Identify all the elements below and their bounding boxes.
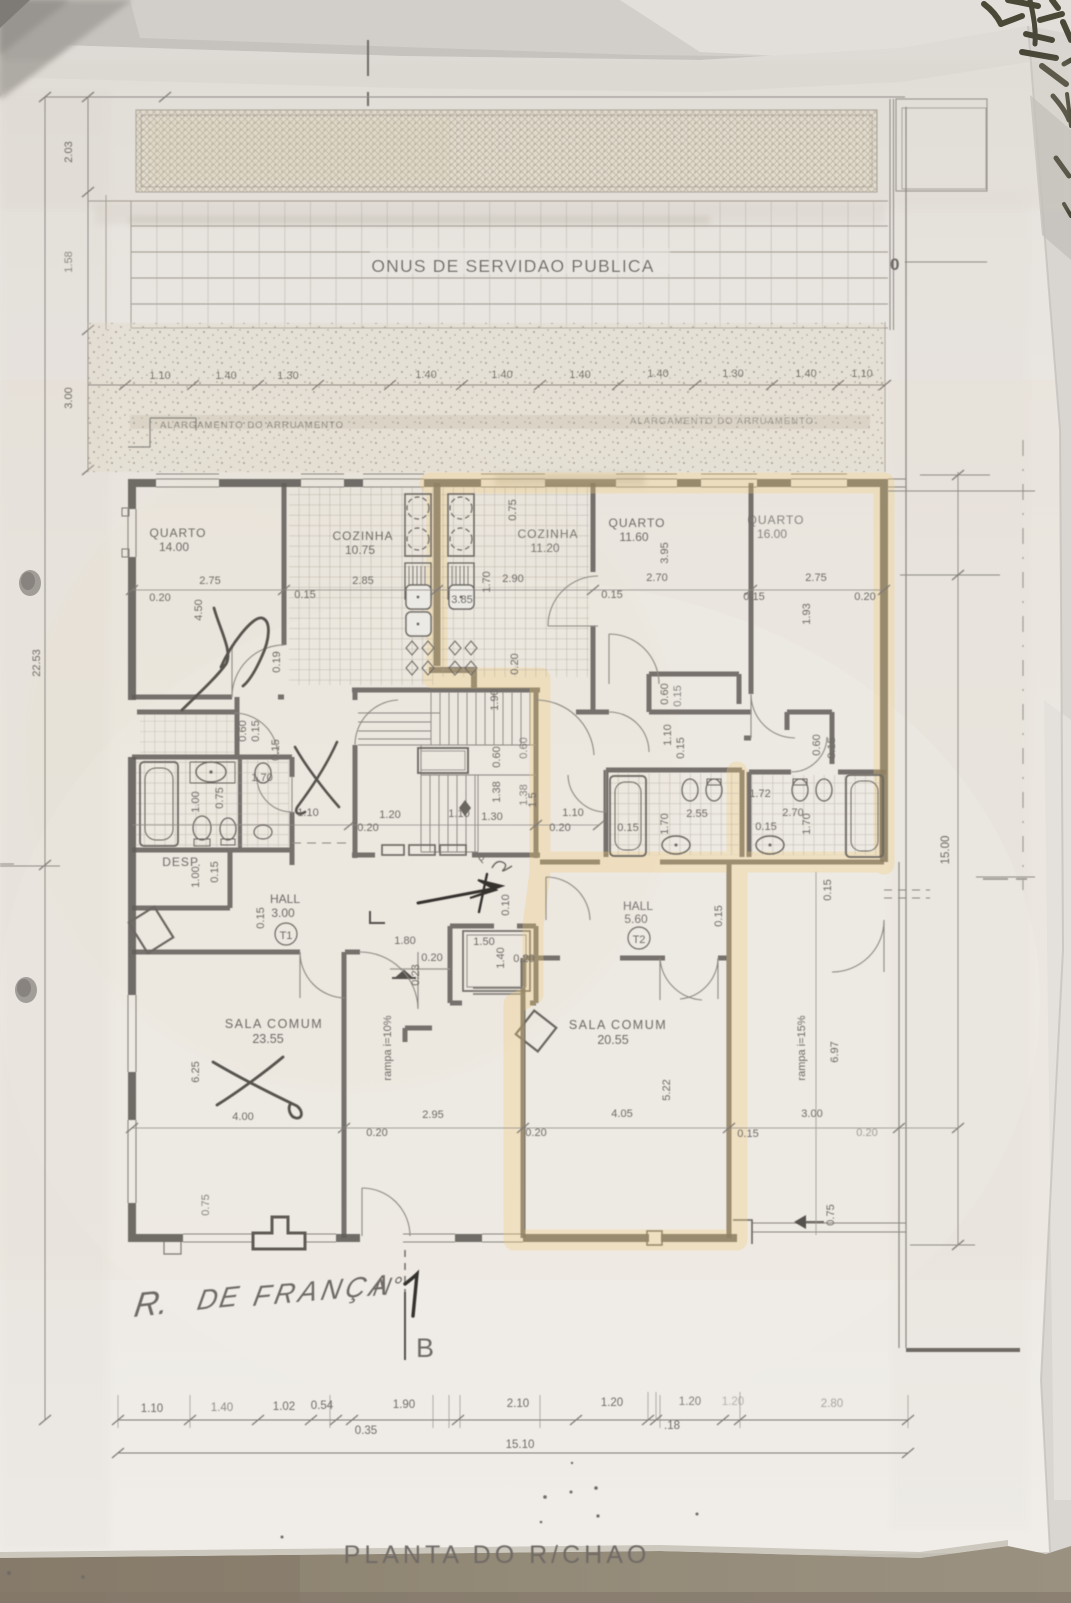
svg-text:0.20: 0.20 <box>856 1127 877 1139</box>
svg-text:0.15: 0.15 <box>675 737 687 758</box>
svg-text:HALL: HALL <box>623 899 653 913</box>
svg-text:6.25: 6.25 <box>190 1061 202 1082</box>
svg-text:0.15: 0.15 <box>617 822 638 834</box>
svg-text:0: 0 <box>890 255 899 274</box>
svg-text:0.54: 0.54 <box>311 1400 334 1412</box>
svg-text:ALARGAMENTO DO ARRUAMENTO: ALARGAMENTO DO ARRUAMENTO <box>160 420 344 431</box>
svg-text:N°: N° <box>371 1272 405 1302</box>
svg-text:0.15: 0.15 <box>209 861 221 882</box>
svg-text:0.15: 0.15 <box>713 905 725 926</box>
svg-text:0.60: 0.60 <box>659 683 671 704</box>
svg-text:0.60: 0.60 <box>491 746 503 767</box>
svg-text:T2: T2 <box>633 934 646 946</box>
svg-text:22.53: 22.53 <box>31 649 43 677</box>
svg-text:1.93: 1.93 <box>801 603 813 624</box>
svg-text:3.85: 3.85 <box>451 594 472 606</box>
svg-text:2.80: 2.80 <box>821 1398 843 1410</box>
svg-text:T1: T1 <box>280 930 293 942</box>
svg-text:COZINHA: COZINHA <box>333 529 394 543</box>
svg-text:QUARTO: QUARTO <box>748 513 805 527</box>
svg-text:HALL: HALL <box>270 892 300 906</box>
svg-text:1.70: 1.70 <box>801 813 813 834</box>
svg-text:0.15: 0.15 <box>250 720 262 741</box>
svg-text:2.95: 2.95 <box>422 1109 443 1121</box>
svg-text:1.20: 1.20 <box>679 1396 701 1408</box>
svg-text:0.75: 0.75 <box>825 1204 837 1225</box>
svg-text:2.70: 2.70 <box>646 572 667 584</box>
svg-text:20.55: 20.55 <box>597 1033 628 1047</box>
svg-text:4.50: 4.50 <box>193 599 205 620</box>
svg-text:1.20: 1.20 <box>379 809 400 821</box>
svg-text:0.20: 0.20 <box>149 592 170 604</box>
svg-text:3.95: 3.95 <box>659 542 671 563</box>
svg-text:0.20: 0.20 <box>525 1127 546 1139</box>
svg-text:0.35: 0.35 <box>355 1425 377 1437</box>
svg-text:2.85: 2.85 <box>352 575 373 587</box>
svg-text:0.20: 0.20 <box>854 591 875 603</box>
svg-text:rampa i=10%: rampa i=10% <box>382 1015 394 1080</box>
svg-text:1.72: 1.72 <box>749 788 770 800</box>
svg-text:0.15: 0.15 <box>737 1128 758 1140</box>
svg-text:1.58: 1.58 <box>63 251 75 272</box>
svg-text:0.15: 0.15 <box>822 879 834 900</box>
svg-text:0.20: 0.20 <box>421 952 442 964</box>
svg-text:3.00: 3.00 <box>271 906 295 920</box>
svg-text:0.23: 0.23 <box>410 964 422 985</box>
svg-text:16.00: 16.00 <box>757 527 787 541</box>
svg-text:0.15: 0.15 <box>755 821 776 833</box>
svg-text:1.70: 1.70 <box>251 772 272 784</box>
svg-text:23.55: 23.55 <box>252 1032 283 1046</box>
svg-text:1.20: 1.20 <box>722 1396 744 1408</box>
svg-text:0.20: 0.20 <box>509 653 521 674</box>
svg-text:15.00: 15.00 <box>940 836 952 865</box>
svg-text:1.40: 1.40 <box>415 369 436 381</box>
svg-text:0.20: 0.20 <box>357 822 378 834</box>
svg-text:0.20: 0.20 <box>549 822 570 834</box>
svg-text:2.75: 2.75 <box>199 575 220 587</box>
svg-text:ONUS DE SERVIDAO PUBLICA: ONUS DE SERVIDAO PUBLICA <box>371 256 654 276</box>
svg-text:1.90: 1.90 <box>489 689 501 710</box>
svg-text:0.60: 0.60 <box>237 720 249 741</box>
svg-text:1.40: 1.40 <box>569 369 590 381</box>
svg-text:QUARTO: QUARTO <box>609 516 666 530</box>
svg-text:1.10: 1.10 <box>149 370 170 382</box>
svg-text:1.00: 1.00 <box>190 866 202 887</box>
svg-text:QUARTO: QUARTO <box>150 526 207 540</box>
svg-text:0.15: 0.15 <box>255 907 267 928</box>
svg-text:1.40: 1.40 <box>215 370 236 382</box>
svg-text:5.60: 5.60 <box>624 912 648 926</box>
svg-text:11.60: 11.60 <box>619 530 648 544</box>
svg-text:1.80: 1.80 <box>394 935 415 947</box>
svg-text:1.90: 1.90 <box>393 1399 415 1411</box>
svg-text:SALA COMUM: SALA COMUM <box>225 1017 323 1031</box>
svg-text:2.90: 2.90 <box>502 573 523 585</box>
svg-text:10.75: 10.75 <box>345 543 375 557</box>
svg-text:1.00: 1.00 <box>190 791 202 812</box>
svg-text:1.40: 1.40 <box>647 368 668 380</box>
svg-text:COZINHA: COZINHA <box>518 527 579 541</box>
svg-text:1.50: 1.50 <box>473 936 494 948</box>
svg-text:0.20: 0.20 <box>366 1127 387 1139</box>
svg-text:1.10: 1.10 <box>562 807 583 819</box>
svg-text:2.55: 2.55 <box>686 808 707 820</box>
svg-text:2.10: 2.10 <box>507 1398 529 1410</box>
svg-text:1.30: 1.30 <box>722 368 743 380</box>
svg-text:1.30: 1.30 <box>277 370 298 382</box>
svg-text:5.22: 5.22 <box>661 1079 673 1100</box>
svg-text:1.40: 1.40 <box>491 369 512 381</box>
svg-text:0.75: 0.75 <box>200 1194 212 1215</box>
svg-text:1.40: 1.40 <box>495 947 507 968</box>
svg-text:0.10: 0.10 <box>500 894 512 915</box>
svg-text:1.10: 1.10 <box>662 724 674 745</box>
svg-text:1.02: 1.02 <box>273 1401 295 1413</box>
svg-text:1.5: 1.5 <box>527 792 539 807</box>
svg-text:15.10: 15.10 <box>506 1439 535 1451</box>
svg-text:4.05: 4.05 <box>611 1108 632 1120</box>
svg-text:.18: .18 <box>664 1420 680 1432</box>
svg-text:3.00: 3.00 <box>801 1108 822 1120</box>
svg-text:11.20: 11.20 <box>530 541 559 555</box>
svg-text:1.40: 1.40 <box>211 1402 233 1414</box>
svg-text:0.60: 0.60 <box>518 737 530 758</box>
svg-text:0.20: 0.20 <box>513 953 534 965</box>
svg-text:1.10: 1.10 <box>141 1403 163 1415</box>
svg-text:1.70: 1.70 <box>481 571 493 592</box>
svg-text:6.97: 6.97 <box>829 1041 841 1062</box>
svg-text:3.00: 3.00 <box>63 387 75 408</box>
svg-text:1.20: 1.20 <box>601 1397 623 1409</box>
svg-text:1.38: 1.38 <box>491 781 503 802</box>
svg-text:0.60: 0.60 <box>811 734 823 755</box>
svg-text:R.: R. <box>132 1283 171 1325</box>
svg-text:1.10: 1.10 <box>448 808 469 820</box>
svg-text:B: B <box>416 1333 434 1363</box>
svg-text:4.00: 4.00 <box>232 1111 253 1123</box>
svg-text:DE: DE <box>195 1280 243 1317</box>
svg-text:0.15: 0.15 <box>743 591 764 603</box>
svg-text:1.30: 1.30 <box>481 811 502 823</box>
svg-text:0.15: 0.15 <box>270 739 282 760</box>
svg-text:2.75: 2.75 <box>805 572 826 584</box>
svg-text:2.03: 2.03 <box>63 141 75 162</box>
svg-text:0.15: 0.15 <box>601 589 622 601</box>
svg-text:1.70: 1.70 <box>659 813 671 834</box>
svg-text:0.15: 0.15 <box>294 589 315 601</box>
svg-text:0.75: 0.75 <box>507 499 519 520</box>
svg-text:14.00: 14.00 <box>159 540 189 554</box>
svg-text:1.10: 1.10 <box>851 368 872 380</box>
svg-text:1.40: 1.40 <box>795 368 816 380</box>
svg-text:ALARGAMENTO DO ARRUAMENTO: ALARGAMENTO DO ARRUAMENTO <box>630 416 814 427</box>
svg-text:PLANTA DO R/CHAO: PLANTA DO R/CHAO <box>344 1541 651 1569</box>
svg-text:rampa i=15%: rampa i=15% <box>796 1015 808 1080</box>
svg-text:SALA COMUM: SALA COMUM <box>569 1018 667 1032</box>
svg-text:0.19: 0.19 <box>271 651 283 672</box>
svg-text:0.75: 0.75 <box>214 787 226 808</box>
svg-text:0.15: 0.15 <box>672 685 684 706</box>
svg-text:0.15: 0.15 <box>826 737 838 758</box>
